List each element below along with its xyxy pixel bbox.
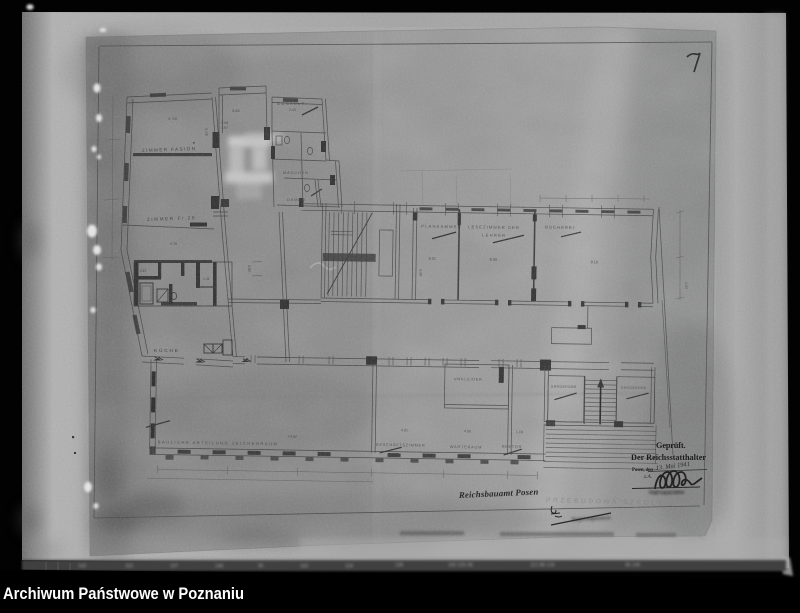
svg-text:146: 146 [215, 564, 224, 570]
svg-text:162: 162 [125, 564, 134, 570]
svg-text:150 103 96: 150 103 96 [448, 563, 473, 569]
svg-text:95 140: 95 140 [625, 563, 641, 569]
svg-text:162: 162 [300, 564, 309, 570]
svg-text:142: 142 [78, 564, 87, 570]
svg-text:112 88 134: 112 88 134 [530, 563, 555, 569]
svg-text:95: 95 [258, 564, 264, 570]
svg-text:118: 118 [345, 564, 353, 570]
svg-text:107: 107 [170, 564, 179, 570]
svg-text:136: 136 [395, 563, 404, 569]
svg-text:Archiwum Państwowe w Poznaniu: Archiwum Państwowe w Poznaniu [3, 584, 244, 603]
